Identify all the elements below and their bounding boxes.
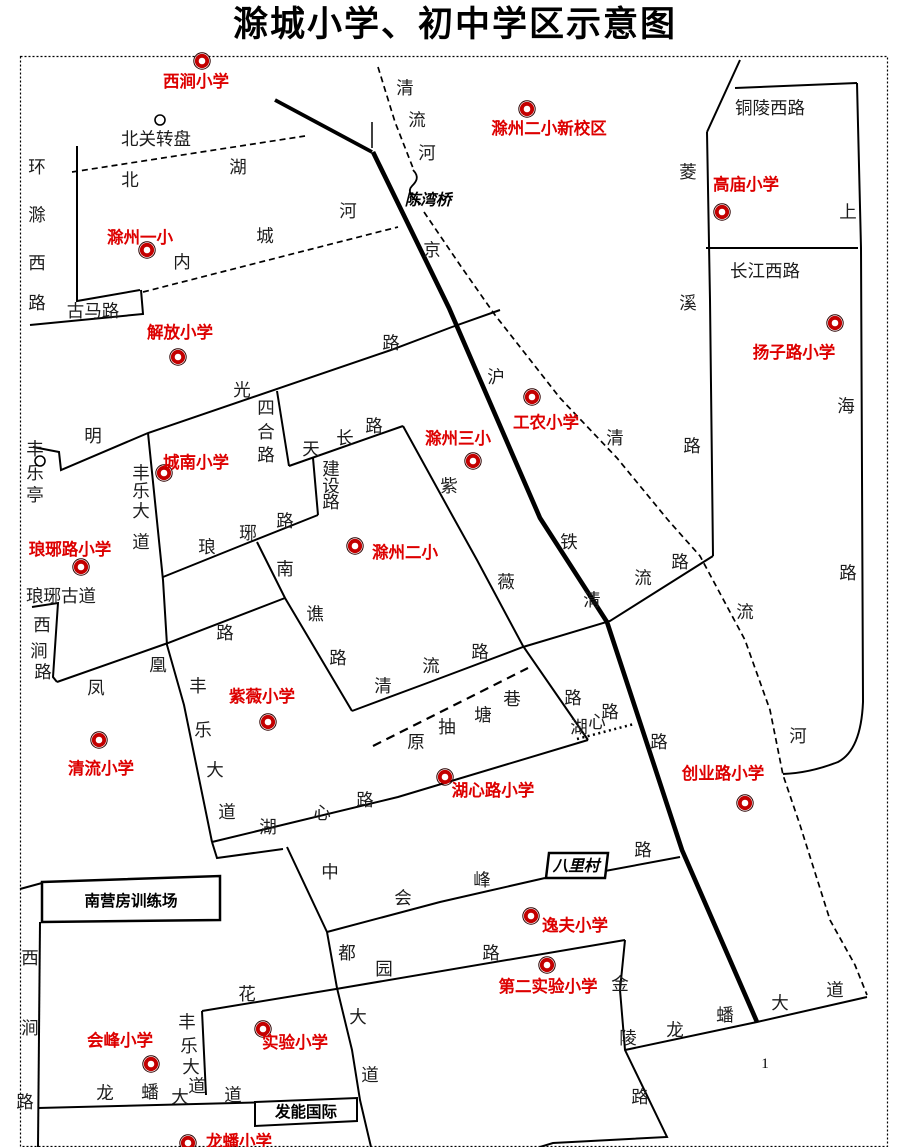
road-label-char: 路: [482, 943, 500, 963]
road-label-char: 都: [338, 943, 356, 963]
road-label-char: 路: [276, 511, 294, 531]
road-label: 北关转盘: [121, 129, 191, 149]
road-label: 铜陵西路: [735, 98, 805, 118]
school-marker: [183, 1138, 193, 1147]
road-label-char: 薇: [497, 572, 515, 592]
school-marker: [717, 207, 727, 217]
northeast-boundary-line: [707, 60, 740, 132]
school-label: 第二实验小学: [499, 976, 598, 996]
nanqiao-road-line: [257, 542, 352, 711]
map-labels: 环滁西路清流河北湖内城河京沪铁路菱溪路上海路明光路四合路天长路建设路丰乐亭丰乐大…: [16, 53, 857, 1147]
school-marker: [542, 960, 552, 970]
road-label-char: 河: [418, 143, 436, 163]
road-label-char: 滁: [28, 205, 46, 225]
road-label-char: 凤: [87, 678, 105, 698]
east-boundary-line: [783, 83, 863, 774]
road-label-char: 蟠: [716, 1005, 734, 1025]
road-label-char: 塘: [474, 705, 492, 725]
road-label-char: 琊: [239, 523, 257, 543]
road-label-char: 原: [407, 732, 425, 752]
school-label: 琅琊路小学: [29, 539, 112, 559]
road-label: 古马路: [67, 301, 120, 321]
school-marker: [76, 562, 86, 572]
beiguan-thick-road-line: [275, 100, 372, 152]
road-label-char: 道: [132, 532, 150, 552]
sihe-road-line: [277, 391, 289, 466]
school-label: 逸夫小学: [542, 915, 608, 935]
road-label-char: 沪: [487, 367, 505, 387]
road-label-char: 清: [583, 590, 601, 610]
jinling-road-line: [540, 940, 667, 1147]
road-label-char: 路: [216, 623, 234, 643]
road-label-char: 清: [606, 428, 624, 448]
road-label-char: 光: [233, 380, 251, 400]
road-label-char: 路: [650, 732, 668, 752]
jinghu-railway-inner: [373, 152, 757, 1022]
school-label: 滁州三小: [425, 428, 492, 448]
road-label-char: 四: [257, 398, 275, 418]
school-marker: [527, 392, 537, 402]
road-label-char: 流: [736, 602, 754, 622]
school-marker: [263, 717, 273, 727]
ziwei-road-line: [403, 426, 588, 740]
school-label: 西涧小学: [163, 71, 229, 91]
road-label-char: 天: [302, 439, 320, 459]
road-label-char: 会: [394, 888, 412, 908]
school-marker: [526, 911, 536, 921]
road-label-char: 大: [171, 1087, 189, 1107]
huifeng-road-line: [327, 857, 680, 932]
road-label-char: 乐: [180, 1036, 198, 1056]
training-ground-edge-line: [20, 883, 42, 889]
road-label-char: 上: [839, 202, 857, 222]
school-label: 实验小学: [262, 1032, 328, 1052]
road-label-char: 流: [408, 110, 426, 130]
road-label-char: 龙: [96, 1083, 114, 1103]
road-label-char: 路: [356, 790, 374, 810]
road-label-char: 大: [182, 1057, 200, 1077]
landmark-label: 八里村: [552, 857, 602, 875]
school-marker: [146, 1059, 156, 1069]
road-label-char: 路: [365, 416, 383, 436]
school-label: 龙蟠小学: [205, 1131, 272, 1147]
map-border: [21, 57, 888, 1147]
road-label-char: 海: [837, 396, 855, 416]
road-label-char: 乐: [132, 481, 150, 501]
school-label: 滁州二小: [372, 542, 439, 562]
road-label-char: 路: [564, 688, 582, 708]
school-label: 扬子路小学: [753, 342, 836, 362]
road-label-char: 环: [28, 157, 46, 177]
road-label-char: 大: [349, 1007, 367, 1027]
road-label-char: 蟠: [141, 1082, 159, 1102]
road-label-char: 明: [84, 426, 102, 446]
road-label-char: 路: [257, 445, 275, 465]
school-marker: [173, 352, 183, 362]
road-label-char: 河: [339, 201, 357, 221]
road-label-char: 大: [206, 760, 224, 780]
school-marker: [468, 456, 478, 466]
road-label-char: 流: [634, 568, 652, 588]
road-label-char: 路: [631, 1087, 649, 1107]
road-label-char: 中: [321, 862, 339, 882]
road-label-char: 丰: [132, 463, 150, 483]
road-label-char: 谯: [306, 604, 324, 624]
road-label-char: 道: [361, 1065, 379, 1085]
school-label: 滁州一小: [107, 227, 174, 247]
huayuan-road-line: [202, 940, 625, 1011]
road-label-char: 湖: [570, 717, 588, 737]
longpan-avenue-east-line: [625, 997, 867, 1050]
road-label-char: 湖: [229, 157, 247, 177]
road-label-char: 丰: [189, 676, 207, 696]
road-label-char: 溪: [679, 293, 697, 313]
road-label-char: 丰: [178, 1012, 196, 1032]
road-label-char: 巷: [503, 689, 521, 709]
road-label-char: 凰: [149, 655, 167, 675]
school-label: 高庙小学: [713, 174, 779, 194]
school-label: 会峰小学: [87, 1030, 153, 1050]
road-label-char: 合: [257, 422, 275, 442]
road-label-char: 路: [601, 702, 619, 722]
fenghuang-road-line: [57, 598, 285, 682]
school-label: 解放小学: [147, 322, 213, 342]
jianshe-road-line: [313, 458, 318, 515]
road-label-char: 北: [121, 170, 139, 190]
road-label-char: 铁: [560, 532, 578, 552]
road-label-char: 内: [173, 252, 191, 272]
road-label-char: 涧: [21, 1018, 39, 1038]
road-label-char: 路: [322, 492, 340, 512]
school-marker: [197, 56, 207, 66]
page-title: 滁城小学、初中学区示意图: [233, 4, 677, 44]
road-label-char: 河: [789, 726, 807, 746]
school-label: 清流小学: [68, 758, 134, 778]
road-label-char: 流: [422, 656, 440, 676]
lingxi-road-line: [707, 132, 713, 556]
road-label-char: 西: [21, 948, 39, 968]
road-label-char: 西: [33, 615, 51, 635]
road-label-char: 金: [611, 974, 629, 994]
road-label-char: 峰: [473, 870, 491, 890]
road-label-char: 南: [276, 559, 294, 579]
school-district-map: 滁城小学、初中学区示意图: [0, 0, 900, 1147]
school-label: 湖心路小学: [452, 780, 535, 800]
road-label-char: 城: [256, 226, 274, 246]
road-label-char: 路: [28, 293, 46, 313]
qingliu-road-line: [352, 556, 713, 711]
school-label: 城南小学: [163, 452, 229, 472]
road-label-char: 湖: [259, 817, 277, 837]
school-label: 滁州二小新校区: [491, 118, 607, 138]
pavilion-circle: [35, 456, 45, 466]
road-label-char: 乐: [194, 720, 212, 740]
school-marker: [94, 735, 104, 745]
road-label-char: 紫: [440, 476, 458, 496]
road-label-char: 琅: [198, 537, 216, 557]
landmark-label: 陈湾桥: [405, 191, 454, 209]
road-label-char: 清: [396, 78, 414, 98]
road-label-char: 园: [375, 959, 393, 979]
road-label-char: 陵: [619, 1028, 637, 1048]
map-page: 滁城小学、初中学区示意图: [0, 0, 900, 1147]
road-label-char: 路: [382, 333, 400, 353]
road-label-char: 道: [188, 1076, 206, 1096]
huxin-connector-line: [212, 842, 283, 858]
school-label: 创业路小学: [681, 763, 765, 783]
road-label: 琅琊古道: [26, 586, 96, 606]
road-label-char: 心: [313, 803, 331, 823]
road-label: 长江西路: [730, 261, 800, 281]
school-label: 紫薇小学: [229, 686, 295, 706]
road-label-char: 龙: [666, 1020, 684, 1040]
road-label-char: 亭: [26, 485, 44, 505]
school-label: 工农小学: [513, 412, 579, 432]
school-marker: [350, 541, 360, 551]
school-marker: [522, 104, 532, 114]
road-label-char: 长: [336, 428, 354, 448]
road-label-char: 西: [28, 253, 46, 273]
road-label-char: 抽: [438, 717, 456, 737]
road-label-char: 道: [218, 802, 236, 822]
school-marker: [830, 318, 840, 328]
road-label-char: 清: [374, 676, 392, 696]
road-label-char: 道: [224, 1085, 242, 1105]
landmark-label: 南营房训练场: [84, 891, 177, 910]
page-number: 1: [761, 1056, 769, 1072]
road-label-char: 路: [471, 642, 489, 662]
road-label-char: 路: [839, 563, 857, 583]
roundabout-circle: [155, 115, 165, 125]
road-label-char: 花: [238, 984, 256, 1004]
road-label-char: 涧: [30, 641, 48, 661]
road-label-char: 路: [683, 436, 701, 456]
school-marker: [740, 798, 750, 808]
road-label-char: 京: [423, 240, 441, 260]
landmark-label: 发能国际: [274, 1102, 338, 1121]
road-label-char: 路: [634, 840, 652, 860]
road-label-char: 路: [16, 1092, 34, 1112]
road-label-char: 路: [671, 552, 689, 572]
school-marker: [440, 772, 450, 782]
road-label-char: 大: [132, 501, 150, 521]
road-label-char: 路: [329, 648, 347, 668]
road-label-char: 道: [826, 980, 844, 1000]
tongling-west-road-line: [735, 83, 857, 88]
road-label-char: 菱: [679, 162, 697, 182]
road-label-char: 大: [771, 993, 789, 1013]
road-label-char: 路: [34, 662, 52, 682]
